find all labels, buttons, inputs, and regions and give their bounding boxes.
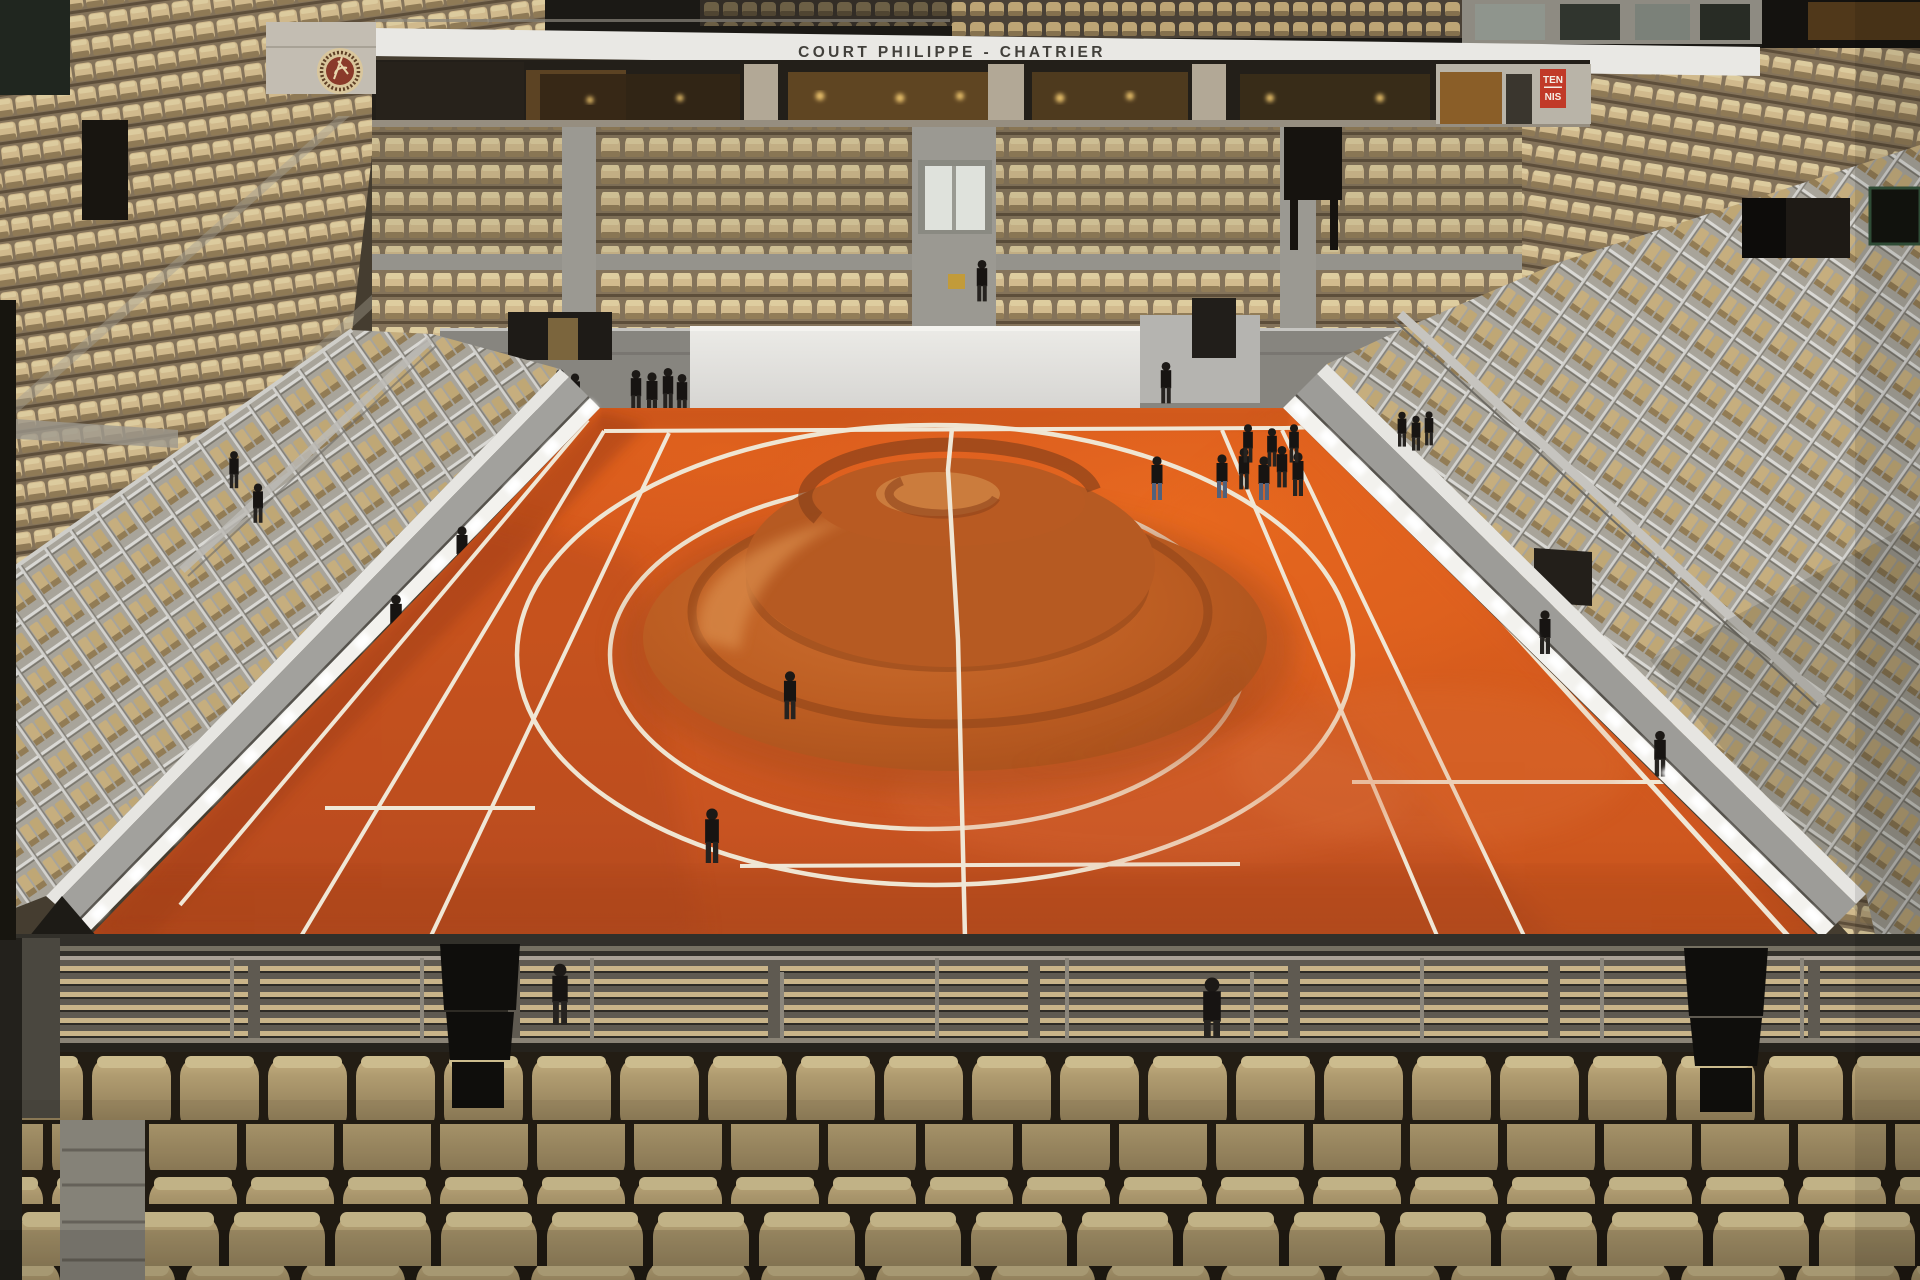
svg-text:TEN: TEN bbox=[1543, 75, 1563, 86]
svg-text:NIS: NIS bbox=[1545, 92, 1562, 103]
svg-text:COURT PHILIPPE - CHATRIER: COURT PHILIPPE - CHATRIER bbox=[798, 44, 1106, 61]
